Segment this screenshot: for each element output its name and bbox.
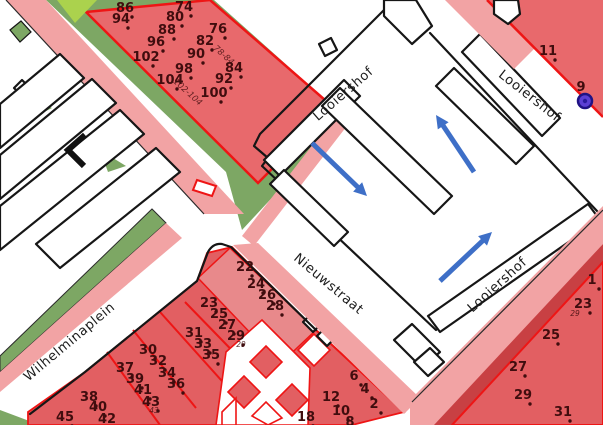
house-number: 100 — [200, 86, 227, 101]
house-number: 104 — [156, 73, 183, 88]
direction-arrow — [312, 143, 359, 188]
house-number: 8 — [345, 415, 354, 425]
house-number: 31 — [554, 405, 572, 420]
house-number: 92 — [215, 72, 233, 87]
house-number: 28 — [266, 299, 284, 314]
house-number: 29 — [514, 388, 532, 403]
house-number: 12 — [322, 390, 340, 405]
house-number: 29 — [227, 329, 245, 344]
house-number: 42 — [98, 412, 116, 425]
house-number: 4 — [360, 382, 369, 397]
house-number: 23 — [574, 297, 592, 312]
house-number: 22 — [236, 260, 254, 275]
house-number: 11 — [539, 44, 557, 59]
small-structure — [319, 38, 337, 56]
house-number: 90 — [187, 47, 205, 62]
house-number: 94 — [112, 12, 130, 27]
house-number: 43 — [142, 395, 160, 410]
map-image: 78-84102-104432929 867494808876968210290… — [0, 0, 603, 425]
house-number: 1 — [587, 273, 596, 288]
house-number: 6 — [349, 369, 358, 384]
map-marker[interactable] — [578, 94, 592, 108]
direction-arrow — [440, 240, 484, 281]
map-canvas[interactable]: 78-84102-104432929 867494808876968210290… — [0, 0, 603, 425]
house-number: 36 — [167, 377, 185, 392]
house-number: 27 — [509, 360, 527, 375]
house-number: 45 — [56, 410, 74, 425]
house-number: 96 — [147, 35, 165, 50]
house-number: 25 — [542, 328, 560, 343]
house-number: 9 — [576, 80, 585, 95]
route-arrows — [312, 115, 492, 281]
house-number: 102 — [132, 50, 159, 65]
direction-arrow — [442, 124, 474, 172]
house-number: 18 — [297, 410, 315, 425]
house-number: 2 — [369, 397, 378, 412]
house-number: 35 — [202, 348, 220, 363]
